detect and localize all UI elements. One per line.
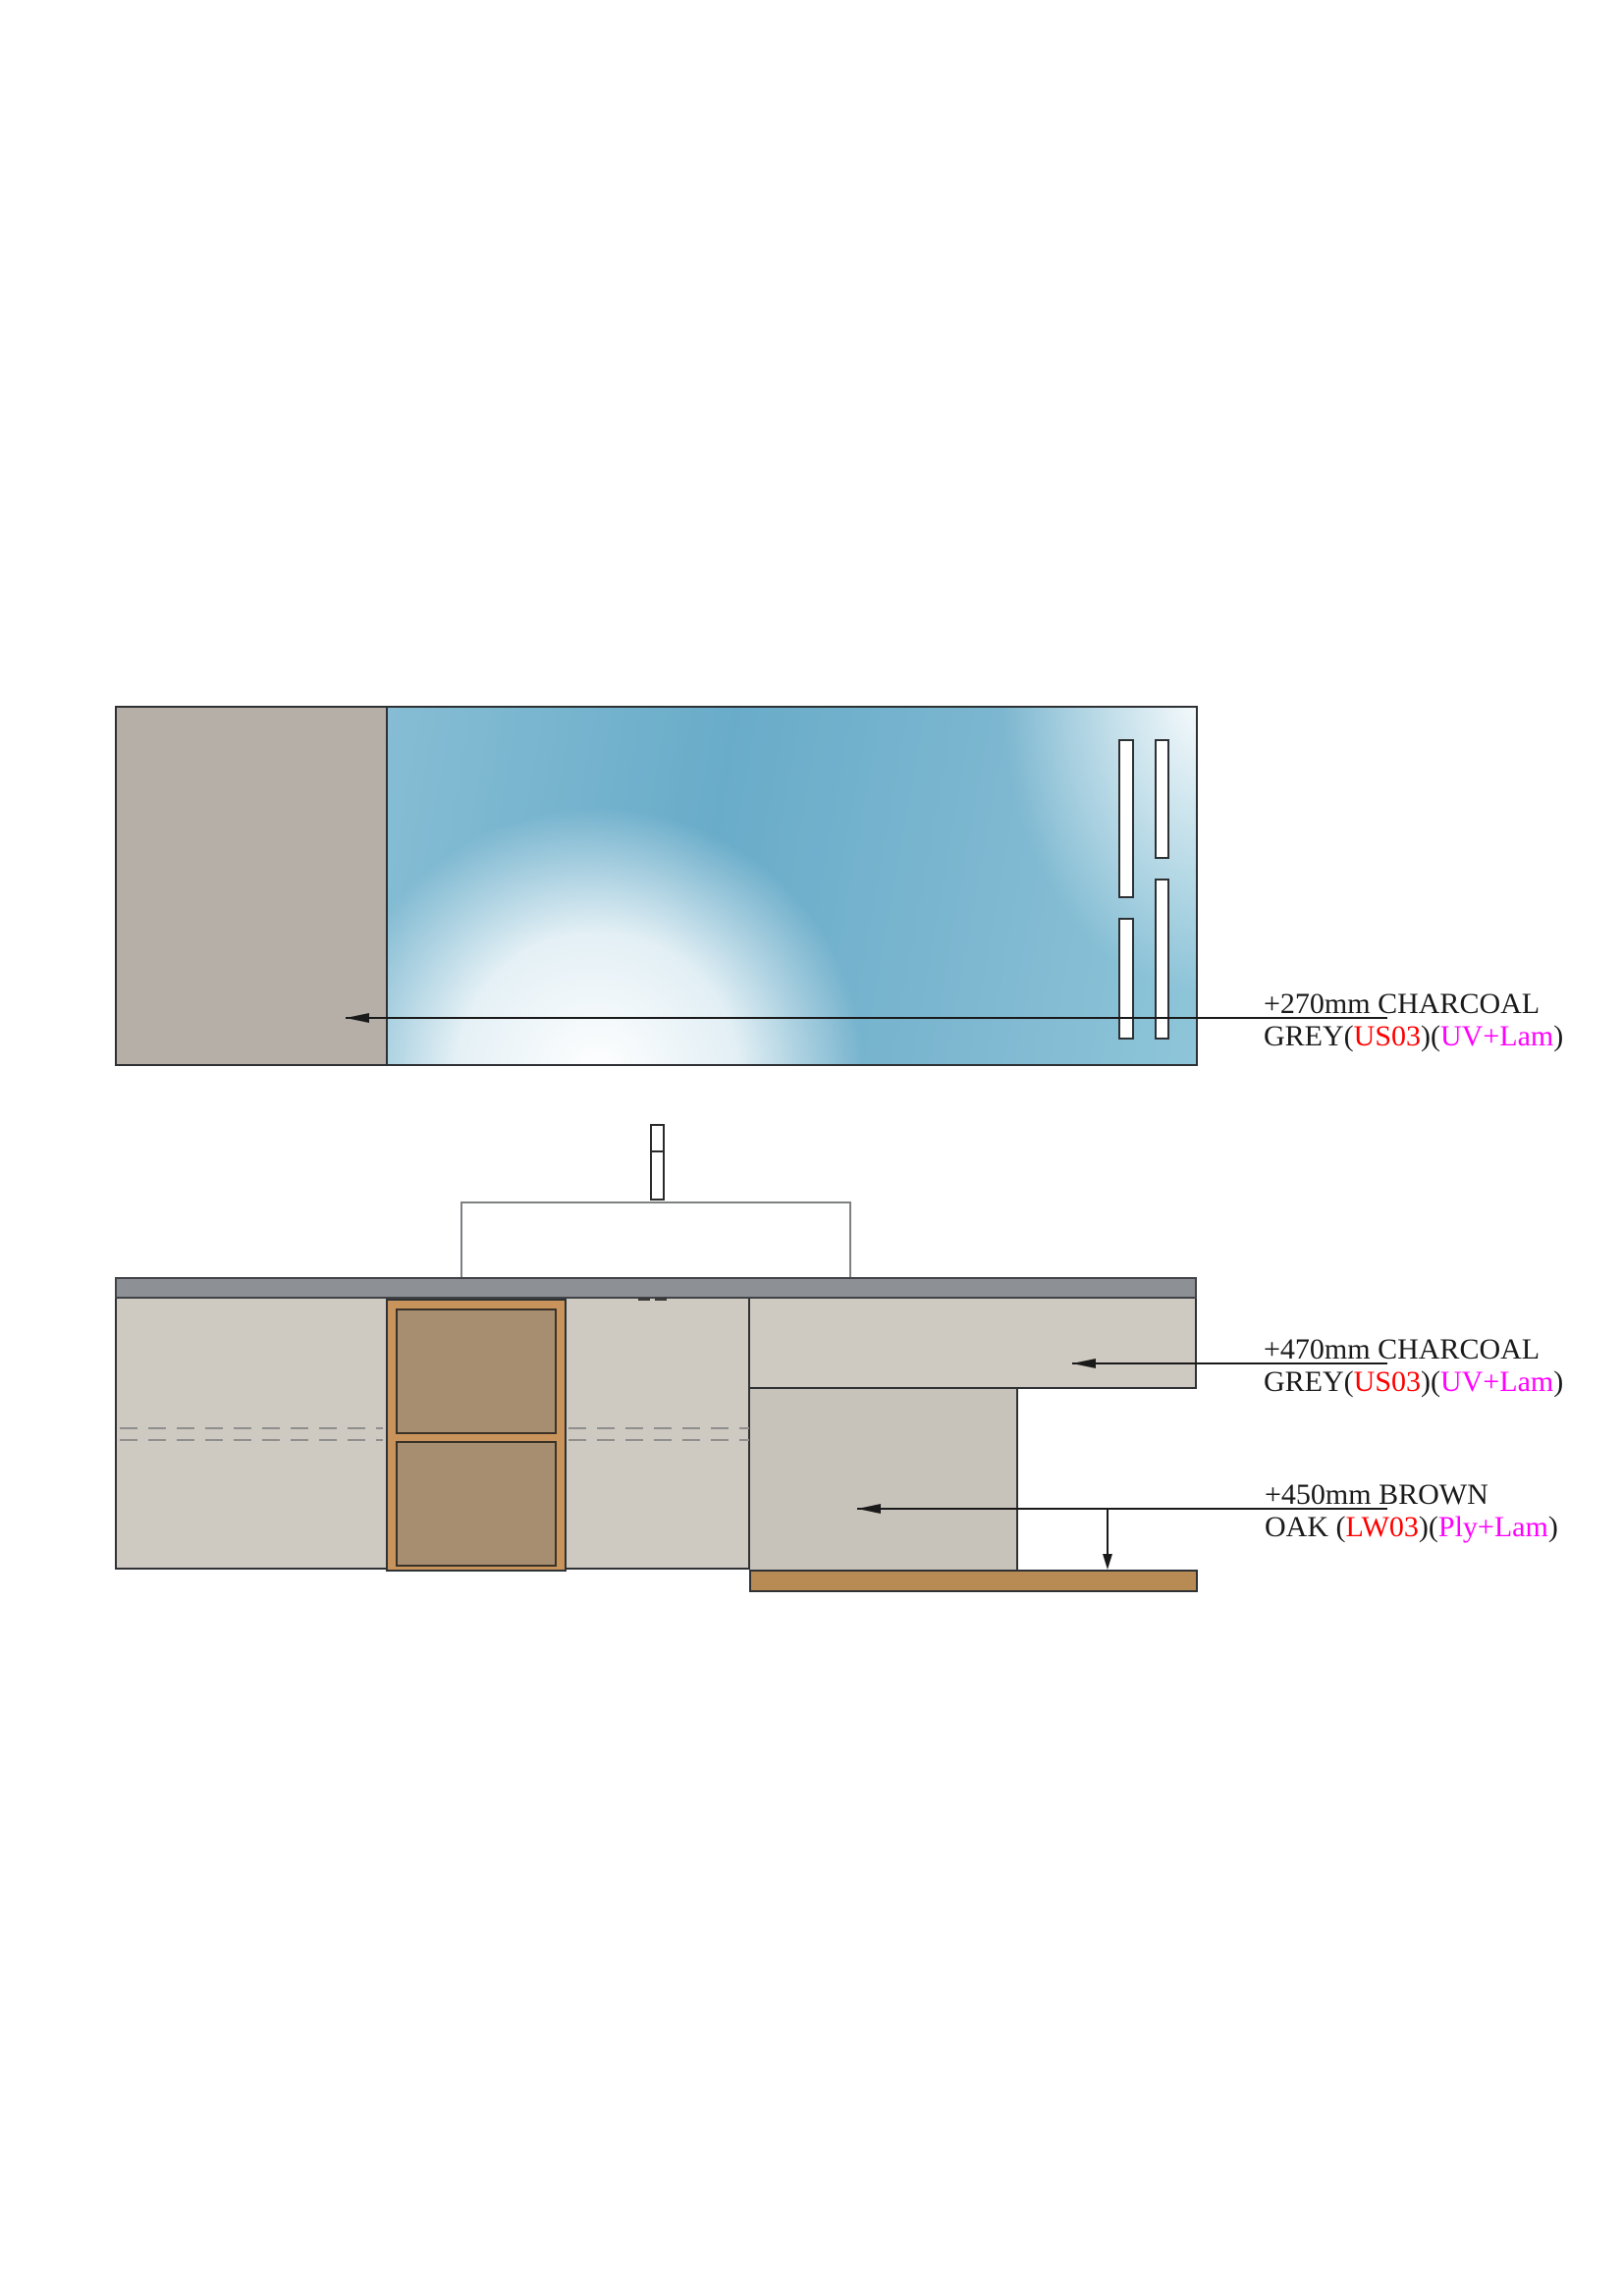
spec-text: ) xyxy=(1548,1511,1558,1543)
mirror-assembly xyxy=(115,706,1198,1066)
spec-text: )( xyxy=(1419,1511,1438,1543)
annotation-line1: +270mm CHARCOAL xyxy=(1264,989,1558,1019)
led-slot-right-bottom xyxy=(1155,879,1169,1040)
annotation-line1: +450mm BROWN xyxy=(1265,1480,1559,1510)
tap-divider-line xyxy=(651,1150,664,1152)
annotation-mirror-panel: +270mm CHARCOAL GREY(US03)(UV+Lam) xyxy=(1264,989,1558,1051)
leader-arrow-mirror-panel xyxy=(346,1013,369,1023)
leader-arrow-oak-shelf xyxy=(857,1504,881,1514)
oak-niche-top xyxy=(396,1308,557,1434)
drain-marks xyxy=(638,1298,668,1301)
door-dash-line xyxy=(120,1427,383,1429)
led-slot-left-bottom xyxy=(1118,918,1134,1040)
leader-line-mirror-panel xyxy=(346,1017,1387,1019)
material-code: US03 xyxy=(1354,1365,1421,1398)
oak-niche-bottom xyxy=(396,1441,557,1567)
finish-code: Ply+Lam xyxy=(1438,1511,1548,1543)
led-slot-left-top xyxy=(1118,739,1134,898)
oak-bottom-shelf xyxy=(749,1570,1198,1592)
spec-text: GREY( xyxy=(1264,1020,1354,1052)
annotation-line1: +470mm CHARCOAL xyxy=(1264,1335,1558,1364)
material-code: LW03 xyxy=(1346,1511,1419,1543)
tap xyxy=(650,1124,665,1201)
annotation-upper-cabinet: +470mm CHARCOAL GREY(US03)(UV+Lam) xyxy=(1264,1335,1558,1397)
spec-text: )( xyxy=(1421,1365,1440,1398)
leader-branch-line xyxy=(1107,1508,1109,1556)
spec-text: GREY( xyxy=(1264,1365,1354,1398)
niche-back-panel xyxy=(750,1389,1018,1570)
spec-text: ) xyxy=(1553,1020,1563,1052)
upper-right-cabinet xyxy=(750,1299,1197,1389)
drawing-canvas: +270mm CHARCOAL GREY(US03)(UV+Lam) +470m… xyxy=(0,0,1623,2296)
basin xyxy=(460,1201,851,1279)
leader-arrow-down-shelf xyxy=(1103,1554,1112,1570)
leader-arrow-upper-cabinet xyxy=(1072,1359,1096,1368)
annotation-line2: GREY(US03)(UV+Lam) xyxy=(1264,1022,1558,1051)
material-code: US03 xyxy=(1354,1020,1421,1052)
door-dash-line xyxy=(568,1427,749,1429)
annotation-line2: OAK (LW03)(Ply+Lam) xyxy=(1265,1513,1559,1542)
door-dash-line xyxy=(568,1439,749,1441)
oak-open-unit xyxy=(386,1299,567,1572)
led-slot-right-top xyxy=(1155,739,1169,859)
mirror-glass xyxy=(388,708,1196,1064)
spec-text: ) xyxy=(1553,1365,1563,1398)
door-dash-line xyxy=(120,1439,383,1441)
charcoal-grey-side-panel xyxy=(117,708,388,1064)
annotation-line2: GREY(US03)(UV+Lam) xyxy=(1264,1367,1558,1397)
spec-text: )( xyxy=(1421,1020,1440,1052)
annotation-oak-shelf: +450mm BROWN OAK (LW03)(Ply+Lam) xyxy=(1265,1480,1559,1542)
finish-code: UV+Lam xyxy=(1440,1020,1553,1052)
spec-text: OAK ( xyxy=(1265,1511,1346,1543)
countertop xyxy=(115,1277,1197,1299)
finish-code: UV+Lam xyxy=(1440,1365,1553,1398)
